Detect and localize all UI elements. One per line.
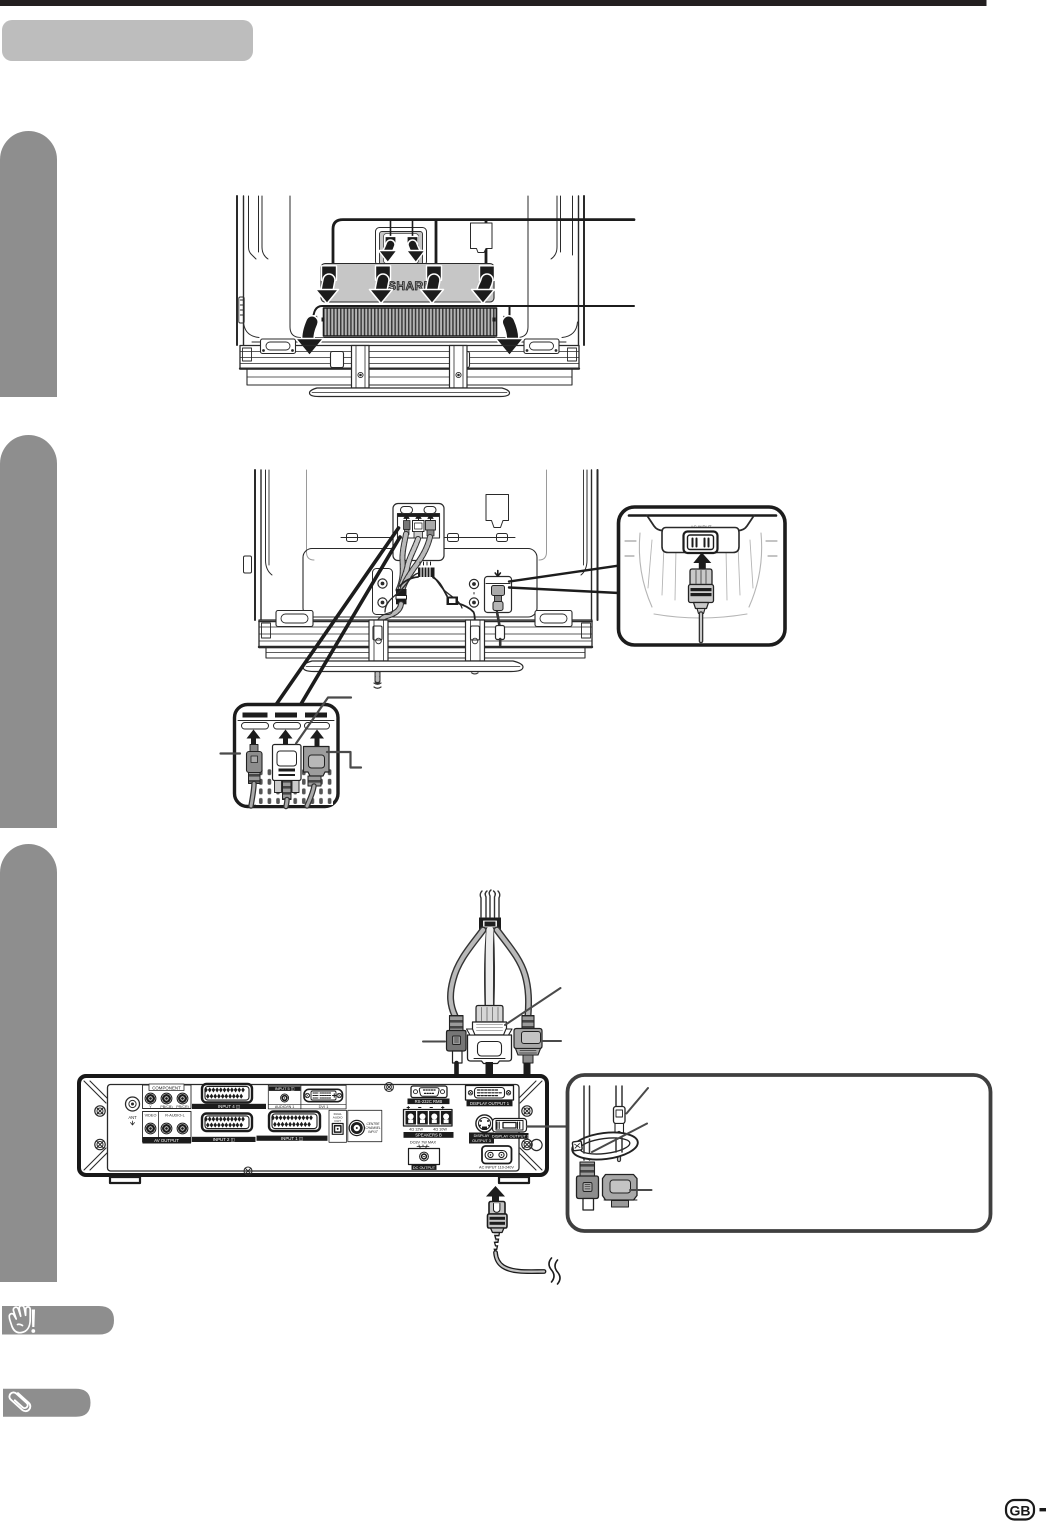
svg-text:AUDIO/IN 1: AUDIO/IN 1 bbox=[275, 1105, 294, 1109]
svg-text:RS-232C RMB: RS-232C RMB bbox=[415, 1099, 443, 1104]
svg-text:SPEAKERS B: SPEAKERS B bbox=[415, 1133, 442, 1138]
svg-text:INPUT 5 ◫: INPUT 5 ◫ bbox=[275, 1086, 295, 1091]
svg-text:DISPLAY OUTPUT 1: DISPLAY OUTPUT 1 bbox=[470, 1101, 510, 1106]
svg-text:DISPLAY OUTPUT 2: DISPLAY OUTPUT 2 bbox=[492, 1134, 530, 1139]
svg-text:INPUT 4 ◫: INPUT 4 ◫ bbox=[218, 1104, 240, 1109]
svg-text:PB(CB): PB(CB) bbox=[160, 1105, 172, 1109]
svg-text:PR(CR): PR(CR) bbox=[176, 1105, 189, 1109]
svg-text:DC OUTPUT: DC OUTPUT bbox=[413, 1166, 436, 1170]
svg-text:GB: GB bbox=[1010, 1502, 1031, 1518]
svg-text:AV OUTPUT: AV OUTPUT bbox=[154, 1138, 179, 1143]
svg-text:DVI 1: DVI 1 bbox=[319, 1104, 329, 1109]
svg-text:COMPONENT: COMPONENT bbox=[152, 1085, 181, 1090]
svg-text:R-AUDIO-L: R-AUDIO-L bbox=[165, 1114, 184, 1118]
svg-text:OUT: OUT bbox=[334, 1119, 341, 1123]
svg-text:DISPLAY: DISPLAY bbox=[474, 1134, 490, 1138]
svg-text:ANT: ANT bbox=[128, 1115, 137, 1120]
svg-text:4Ω 12W: 4Ω 12W bbox=[409, 1128, 423, 1132]
svg-text:INPUT 1 ◫: INPUT 1 ◫ bbox=[281, 1136, 303, 1141]
svg-text:DC8V 7W MAX: DC8V 7W MAX bbox=[410, 1141, 437, 1145]
svg-text:AC INPUT 110-240V: AC INPUT 110-240V bbox=[479, 1166, 514, 1170]
svg-text:INPUT 2 ◫: INPUT 2 ◫ bbox=[213, 1137, 235, 1142]
svg-text:INPUT: INPUT bbox=[368, 1130, 379, 1134]
svg-text:OUTPUT 3: OUTPUT 3 bbox=[472, 1139, 491, 1143]
svg-text:VIDEO: VIDEO bbox=[145, 1114, 157, 1118]
svg-text:4Ω 10W: 4Ω 10W bbox=[433, 1128, 447, 1132]
